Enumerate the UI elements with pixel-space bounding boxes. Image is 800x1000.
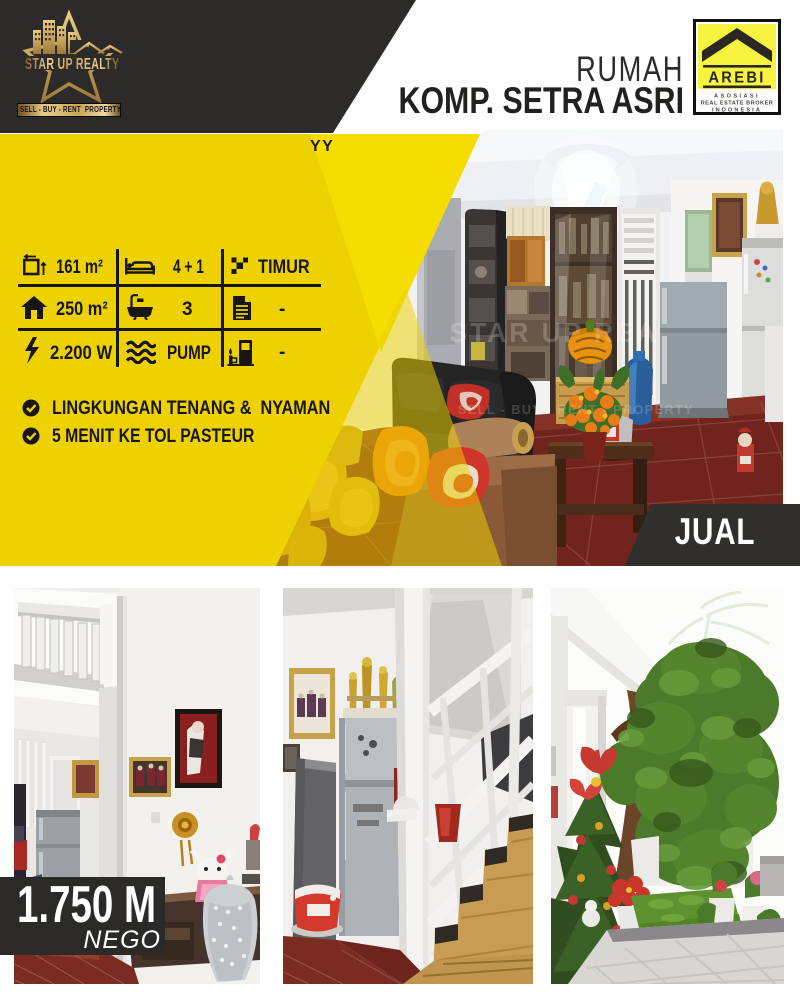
svg-text:ASOSIASI: ASOSIASI <box>714 94 760 100</box>
svg-text:REAL ESTATE BROKER: REAL ESTATE BROKER <box>701 101 774 107</box>
svg-text:STAR UP REA: STAR UP REA <box>449 316 658 348</box>
svg-text:AREBI: AREBI <box>708 69 765 87</box>
svg-text:INDONESIA: INDONESIA <box>712 108 762 114</box>
svg-text:SELL - BUY - RENT - PROPERTY: SELL - BUY - RENT - PROPERTY <box>458 403 694 417</box>
svg-text:STAR UP REALTY: STAR UP REALTY <box>25 55 119 73</box>
